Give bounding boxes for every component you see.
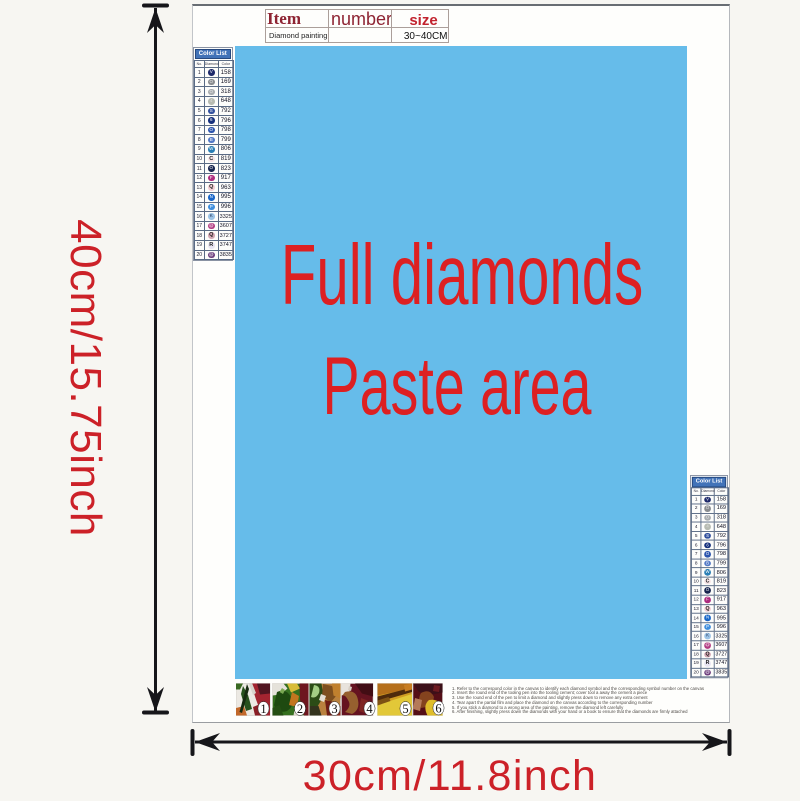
svg-text:1: 1: [260, 702, 266, 716]
svg-text:3: 3: [331, 702, 337, 716]
svg-text:6: 6: [435, 701, 441, 715]
svg-text:4: 4: [366, 702, 373, 716]
svg-text:2: 2: [297, 702, 303, 716]
svg-text:5: 5: [402, 702, 408, 716]
